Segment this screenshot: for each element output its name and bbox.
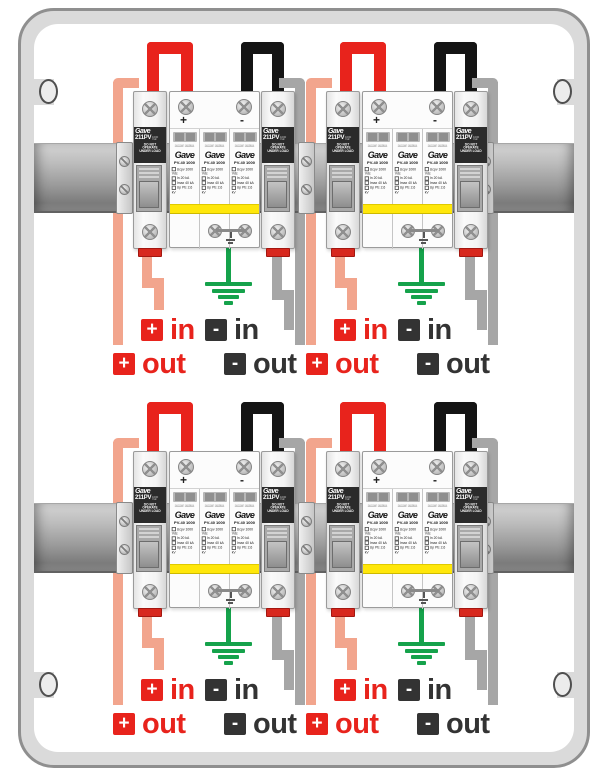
ground-mark-icon xyxy=(419,599,428,601)
breaker-terminal xyxy=(331,608,355,617)
breaker-toggle xyxy=(264,165,290,212)
spd-yellow-band xyxy=(363,204,452,214)
screw-icon xyxy=(463,101,479,117)
label-positive-out: + out xyxy=(306,712,379,736)
spd-specs: Ucpv 1000 VdcIn 20 kA Imax 40 kAUp PE 2,… xyxy=(423,527,448,554)
spd-module: normalreplace Gave PV-40 1000 Ucpv 1000 … xyxy=(363,489,393,609)
surge-protector: + - normalreplace Gave PV-40 1000 Ucpv 1… xyxy=(362,451,453,608)
earth-symbol xyxy=(218,295,239,299)
spd-model: PV-40 1000 xyxy=(423,160,452,166)
wire-negative-jumper xyxy=(241,402,284,452)
plus-badge: + xyxy=(141,319,163,341)
label-negative-in: - in xyxy=(398,678,452,702)
screw-icon xyxy=(270,224,286,240)
earth-symbol xyxy=(205,282,252,286)
spd-model: PV-40 1000 xyxy=(363,160,392,166)
spd-model: PV-40 1000 xyxy=(200,160,229,166)
device-group-2: Gave 211PV 1000 Vdc DO NOT OPERATE UNDER… xyxy=(298,42,498,382)
plus-terminal-label: + xyxy=(373,114,380,126)
breaker-toggle xyxy=(136,525,162,572)
earth-symbol xyxy=(224,301,233,305)
plus-terminal-label: + xyxy=(180,474,187,486)
screw-icon xyxy=(142,584,158,600)
breaker-model: 211PV xyxy=(328,495,344,502)
breaker-rating: 1000 Vdc xyxy=(345,496,351,501)
spd-brand-logo: Gave xyxy=(230,511,259,520)
screw-icon xyxy=(463,461,479,477)
ground-mark-icon xyxy=(423,592,425,598)
breaker-warning-label: Gave 211PV 1000 Vdc DO NOT OPERATE UNDER… xyxy=(262,127,294,163)
wire-negative-in xyxy=(284,292,294,330)
ground-mark-icon xyxy=(419,239,428,241)
plus-badge: + xyxy=(113,353,135,375)
breaker-handle xyxy=(332,181,352,208)
plus-terminal-label: + xyxy=(373,474,380,486)
spd-specs: Ucpv 1000 VdcIn 20 kA Imax 40 kAUp PE 2,… xyxy=(230,167,255,194)
breaker-terminal xyxy=(138,608,162,617)
breaker-warning-text: DO NOT OPERATE UNDER LOAD xyxy=(331,143,355,153)
breaker-rating: 1000 Vdc xyxy=(345,136,351,141)
breaker-warning-label: Gave 211PV 1000 Vdc DO NOT OPERATE UNDER… xyxy=(327,487,359,523)
spd-specs: Ucpv 1000 VdcIn 20 kA Imax 40 kAUp PE 2,… xyxy=(200,527,225,554)
wire-negative-jumper xyxy=(434,42,477,92)
wire-negative-jumper xyxy=(241,42,284,92)
plus-badge: + xyxy=(334,319,356,341)
earth-symbol xyxy=(205,642,252,646)
label-negative-in: - in xyxy=(205,678,259,702)
module-status-window xyxy=(203,492,227,502)
label-positive-in: + in xyxy=(334,318,388,342)
wire-positive-in xyxy=(154,280,164,310)
breaker-handle xyxy=(139,181,159,208)
breaker-warning-text: DO NOT OPERATE UNDER LOAD xyxy=(459,143,483,153)
breaker-brand-logo: Gave xyxy=(456,128,486,135)
spd-model: PV-40 1000 xyxy=(230,160,259,166)
screw-icon xyxy=(270,101,286,117)
minus-terminal-label: - xyxy=(240,114,244,126)
device-group-3: Gave 211PV 1000 Vdc DO NOT OPERATE UNDER… xyxy=(105,402,305,742)
dc-disconnect-negative: Gave 211PV 1000 Vdc DO NOT OPERATE UNDER… xyxy=(454,91,488,257)
screw-icon xyxy=(463,224,479,240)
ground-wire xyxy=(226,247,231,283)
breaker-warning-label: Gave 211PV 1000 Vdc DO NOT OPERATE UNDER… xyxy=(327,127,359,163)
earth-symbol xyxy=(411,295,432,299)
wire-positive-jumper xyxy=(147,42,193,92)
ground-mark-icon xyxy=(421,242,426,244)
breaker-brand-logo: Gave xyxy=(135,488,165,495)
screw-icon xyxy=(142,461,158,477)
wire-negative-in xyxy=(477,652,487,690)
dc-disconnect-negative: Gave 211PV 1000 Vdc DO NOT OPERATE UNDER… xyxy=(261,91,295,257)
breaker-rating: 1000 Vdc xyxy=(280,136,286,141)
spd-yellow-band xyxy=(170,204,259,214)
plus-terminal-label: + xyxy=(180,114,187,126)
minus-badge: - xyxy=(417,713,439,735)
breaker-rating: 1000 Vdc xyxy=(152,496,158,501)
plus-badge: + xyxy=(334,679,356,701)
breaker-terminal xyxy=(459,248,483,257)
spd-model: PV-40 1000 xyxy=(200,520,229,526)
device-group-4: Gave 211PV 1000 Vdc DO NOT OPERATE UNDER… xyxy=(298,402,498,742)
spd-module: normalreplace Gave PV-40 1000 Ucpv 1000 … xyxy=(170,489,200,609)
breaker-terminal xyxy=(459,608,483,617)
wire-positive-in xyxy=(347,280,357,310)
breaker-model: 211PV xyxy=(328,135,344,142)
breaker-rating: 1000 Vdc xyxy=(280,496,286,501)
plus-badge: + xyxy=(306,353,328,375)
ground-wire xyxy=(419,607,424,643)
label-negative-out: - out xyxy=(417,712,490,736)
breaker-model: 211PV xyxy=(135,135,151,142)
screw-icon xyxy=(335,584,351,600)
minus-badge: - xyxy=(398,679,420,701)
minus-badge: - xyxy=(398,319,420,341)
label-positive-in: + in xyxy=(334,678,388,702)
rail-bracket xyxy=(116,502,133,574)
spd-model: PV-40 1000 xyxy=(393,520,422,526)
spd-model: PV-40 1000 xyxy=(230,520,259,526)
module-status-window xyxy=(396,492,420,502)
enclosure-diagram: Gave 211PV 1000 Vdc DO NOT OPERATE UNDER… xyxy=(0,0,611,779)
minus-terminal-label: - xyxy=(240,474,244,486)
screw-icon xyxy=(335,101,351,117)
spd-specs: Ucpv 1000 VdcIn 20 kA Imax 40 kAUp PE 2,… xyxy=(170,167,195,194)
breaker-toggle xyxy=(457,165,483,212)
module-status-window xyxy=(396,132,420,142)
breaker-warning-label: Gave 211PV 1000 Vdc DO NOT OPERATE UNDER… xyxy=(455,487,487,523)
spd-model: PV-40 1000 xyxy=(363,520,392,526)
mounting-hole-top-left xyxy=(39,79,58,104)
module-status-window xyxy=(233,132,257,142)
spd-brand-logo: Gave xyxy=(170,151,199,160)
module-status-window xyxy=(173,132,197,142)
screw-icon xyxy=(236,459,252,475)
spd-brand-logo: Gave xyxy=(200,151,229,160)
breaker-brand-logo: Gave xyxy=(263,488,293,495)
breaker-brand-logo: Gave xyxy=(135,128,165,135)
spd-specs: Ucpv 1000 VdcIn 20 kA Imax 40 kAUp PE 2,… xyxy=(200,167,225,194)
spd-module: normalreplace Gave PV-40 1000 Ucpv 1000 … xyxy=(363,129,393,249)
rail-bracket xyxy=(298,502,315,574)
screw-icon xyxy=(429,459,445,475)
plus-badge: + xyxy=(113,713,135,735)
breaker-rating: 1000 Vdc xyxy=(152,136,158,141)
minus-terminal-label: - xyxy=(433,474,437,486)
spd-specs: Ucpv 1000 VdcIn 20 kA Imax 40 kAUp PE 2,… xyxy=(170,527,195,554)
earth-symbol xyxy=(212,649,245,653)
spd-brand-logo: Gave xyxy=(363,511,392,520)
minus-terminal-label: - xyxy=(433,114,437,126)
label-positive-in: + in xyxy=(141,678,195,702)
screw-icon xyxy=(142,224,158,240)
module-status-window xyxy=(203,132,227,142)
dc-disconnect-positive: Gave 211PV 1000 Vdc DO NOT OPERATE UNDER… xyxy=(133,451,167,617)
breaker-brand-logo: Gave xyxy=(328,488,358,495)
breaker-warning-text: DO NOT OPERATE UNDER LOAD xyxy=(459,503,483,513)
wire-positive-in xyxy=(154,640,164,670)
ground-wire xyxy=(226,607,231,643)
module-status-window xyxy=(426,132,450,142)
earth-symbol xyxy=(218,655,239,659)
ground-mark-icon xyxy=(228,602,233,604)
spd-model: PV-40 1000 xyxy=(393,160,422,166)
screw-icon xyxy=(335,224,351,240)
label-positive-in: + in xyxy=(141,318,195,342)
earth-symbol xyxy=(417,661,426,665)
module-status-window xyxy=(233,492,257,502)
minus-badge: - xyxy=(205,319,227,341)
module-status-window xyxy=(366,492,390,502)
breaker-brand-logo: Gave xyxy=(456,488,486,495)
ground-mark-icon xyxy=(421,602,426,604)
breaker-terminal xyxy=(331,248,355,257)
spd-brand-logo: Gave xyxy=(423,511,452,520)
spd-module: normalreplace Gave PV-40 1000 Ucpv 1000 … xyxy=(170,129,200,249)
breaker-warning-text: DO NOT OPERATE UNDER LOAD xyxy=(138,143,162,153)
minus-badge: - xyxy=(205,679,227,701)
wire-positive-jumper xyxy=(340,42,386,92)
label-negative-in: - in xyxy=(205,318,259,342)
breaker-handle xyxy=(460,181,480,208)
spd-brand-logo: Gave xyxy=(393,151,422,160)
breaker-warning-label: Gave 211PV 1000 Vdc DO NOT OPERATE UNDER… xyxy=(455,127,487,163)
rail-bracket xyxy=(116,142,133,214)
earth-symbol xyxy=(212,289,245,293)
breaker-model: 211PV xyxy=(263,495,279,502)
breaker-toggle xyxy=(329,165,355,212)
breaker-warning-label: Gave 211PV 1000 Vdc DO NOT OPERATE UNDER… xyxy=(134,127,166,163)
minus-badge: - xyxy=(224,713,246,735)
spd-specs: Ucpv 1000 VdcIn 20 kA Imax 40 kAUp PE 2,… xyxy=(363,527,388,554)
spd-brand-logo: Gave xyxy=(363,151,392,160)
screw-icon xyxy=(236,99,252,115)
spd-brand-logo: Gave xyxy=(393,511,422,520)
breaker-toggle xyxy=(457,525,483,572)
plus-badge: + xyxy=(141,679,163,701)
screw-icon xyxy=(142,101,158,117)
breaker-warning-label: Gave 211PV 1000 Vdc DO NOT OPERATE UNDER… xyxy=(262,487,294,523)
breaker-handle xyxy=(267,181,287,208)
ground-mark-icon xyxy=(228,242,233,244)
ground-wire xyxy=(419,247,424,283)
breaker-toggle xyxy=(136,165,162,212)
breaker-warning-label: Gave 211PV 1000 Vdc DO NOT OPERATE UNDER… xyxy=(134,487,166,523)
dc-disconnect-negative: Gave 211PV 1000 Vdc DO NOT OPERATE UNDER… xyxy=(261,451,295,617)
label-negative-out: - out xyxy=(224,352,297,376)
breaker-warning-text: DO NOT OPERATE UNDER LOAD xyxy=(138,503,162,513)
spd-yellow-band xyxy=(170,564,259,574)
screw-icon xyxy=(335,461,351,477)
earth-symbol xyxy=(417,301,426,305)
breaker-warning-text: DO NOT OPERATE UNDER LOAD xyxy=(331,503,355,513)
ground-mark-icon xyxy=(230,232,232,238)
breaker-rating: 1000 Vdc xyxy=(473,496,479,501)
breaker-brand-logo: Gave xyxy=(263,128,293,135)
spd-specs: Ucpv 1000 VdcIn 20 kA Imax 40 kAUp PE 2,… xyxy=(423,167,448,194)
label-negative-in: - in xyxy=(398,318,452,342)
wire-negative-in xyxy=(284,652,294,690)
screw-icon xyxy=(463,584,479,600)
module-status-window xyxy=(173,492,197,502)
dc-disconnect-positive: Gave 211PV 1000 Vdc DO NOT OPERATE UNDER… xyxy=(133,91,167,257)
spd-model: PV-40 1000 xyxy=(170,160,199,166)
breaker-brand-logo: Gave xyxy=(328,128,358,135)
breaker-terminal xyxy=(138,248,162,257)
screw-icon xyxy=(270,461,286,477)
earth-symbol xyxy=(224,661,233,665)
spd-brand-logo: Gave xyxy=(170,511,199,520)
spd-model: PV-40 1000 xyxy=(423,520,452,526)
dc-disconnect-positive: Gave 211PV 1000 Vdc DO NOT OPERATE UNDER… xyxy=(326,451,360,617)
breaker-handle xyxy=(267,541,287,568)
breaker-warning-text: DO NOT OPERATE UNDER LOAD xyxy=(266,143,290,153)
label-negative-out: - out xyxy=(417,352,490,376)
spd-yellow-band xyxy=(363,564,452,574)
breaker-model: 211PV xyxy=(135,495,151,502)
breaker-model: 211PV xyxy=(263,135,279,142)
dc-disconnect-positive: Gave 211PV 1000 Vdc DO NOT OPERATE UNDER… xyxy=(326,91,360,257)
spd-specs: Ucpv 1000 VdcIn 20 kA Imax 40 kAUp PE 2,… xyxy=(363,167,388,194)
label-positive-out: + out xyxy=(113,352,186,376)
earth-symbol xyxy=(411,655,432,659)
wire-positive-jumper xyxy=(340,402,386,452)
breaker-toggle xyxy=(329,525,355,572)
wire-positive-jumper xyxy=(147,402,193,452)
module-status-window xyxy=(366,132,390,142)
breaker-terminal xyxy=(266,248,290,257)
earth-symbol xyxy=(405,649,438,653)
breaker-terminal xyxy=(266,608,290,617)
breaker-toggle xyxy=(264,525,290,572)
minus-badge: - xyxy=(417,353,439,375)
breaker-handle xyxy=(332,541,352,568)
spd-specs: Ucpv 1000 VdcIn 20 kA Imax 40 kAUp PE 2,… xyxy=(393,167,418,194)
screw-icon xyxy=(429,99,445,115)
breaker-model: 211PV xyxy=(456,135,472,142)
surge-protector: + - normalreplace Gave PV-40 1000 Ucpv 1… xyxy=(362,91,453,248)
device-group-1: Gave 211PV 1000 Vdc DO NOT OPERATE UNDER… xyxy=(105,42,305,382)
earth-symbol xyxy=(405,289,438,293)
rail-bracket xyxy=(298,142,315,214)
spd-specs: Ucpv 1000 VdcIn 20 kA Imax 40 kAUp PE 2,… xyxy=(230,527,255,554)
wire-negative-in xyxy=(477,292,487,330)
dc-disconnect-negative: Gave 211PV 1000 Vdc DO NOT OPERATE UNDER… xyxy=(454,451,488,617)
breaker-warning-text: DO NOT OPERATE UNDER LOAD xyxy=(266,503,290,513)
screw-icon xyxy=(270,584,286,600)
mounting-hole-top-right xyxy=(553,79,572,104)
label-positive-out: + out xyxy=(306,352,379,376)
spd-specs: Ucpv 1000 VdcIn 20 kA Imax 40 kAUp PE 2,… xyxy=(393,527,418,554)
surge-protector: + - normalreplace Gave PV-40 1000 Ucpv 1… xyxy=(169,91,260,248)
ground-mark-icon xyxy=(423,232,425,238)
surge-protector: + - normalreplace Gave PV-40 1000 Ucpv 1… xyxy=(169,451,260,608)
wire-negative-jumper xyxy=(434,402,477,452)
wire-positive-in xyxy=(347,640,357,670)
spd-brand-logo: Gave xyxy=(230,151,259,160)
breaker-handle xyxy=(460,541,480,568)
spd-brand-logo: Gave xyxy=(200,511,229,520)
ground-mark-icon xyxy=(230,592,232,598)
breaker-model: 211PV xyxy=(456,495,472,502)
label-positive-out: + out xyxy=(113,712,186,736)
breaker-handle xyxy=(139,541,159,568)
ground-mark-icon xyxy=(226,239,235,241)
earth-symbol xyxy=(398,282,445,286)
plus-badge: + xyxy=(306,713,328,735)
mounting-hole-bottom-left xyxy=(39,672,58,697)
module-status-window xyxy=(426,492,450,502)
spd-model: PV-40 1000 xyxy=(170,520,199,526)
mounting-hole-bottom-right xyxy=(553,672,572,697)
label-negative-out: - out xyxy=(224,712,297,736)
ground-mark-icon xyxy=(226,599,235,601)
spd-brand-logo: Gave xyxy=(423,151,452,160)
breaker-rating: 1000 Vdc xyxy=(473,136,479,141)
earth-symbol xyxy=(398,642,445,646)
minus-badge: - xyxy=(224,353,246,375)
